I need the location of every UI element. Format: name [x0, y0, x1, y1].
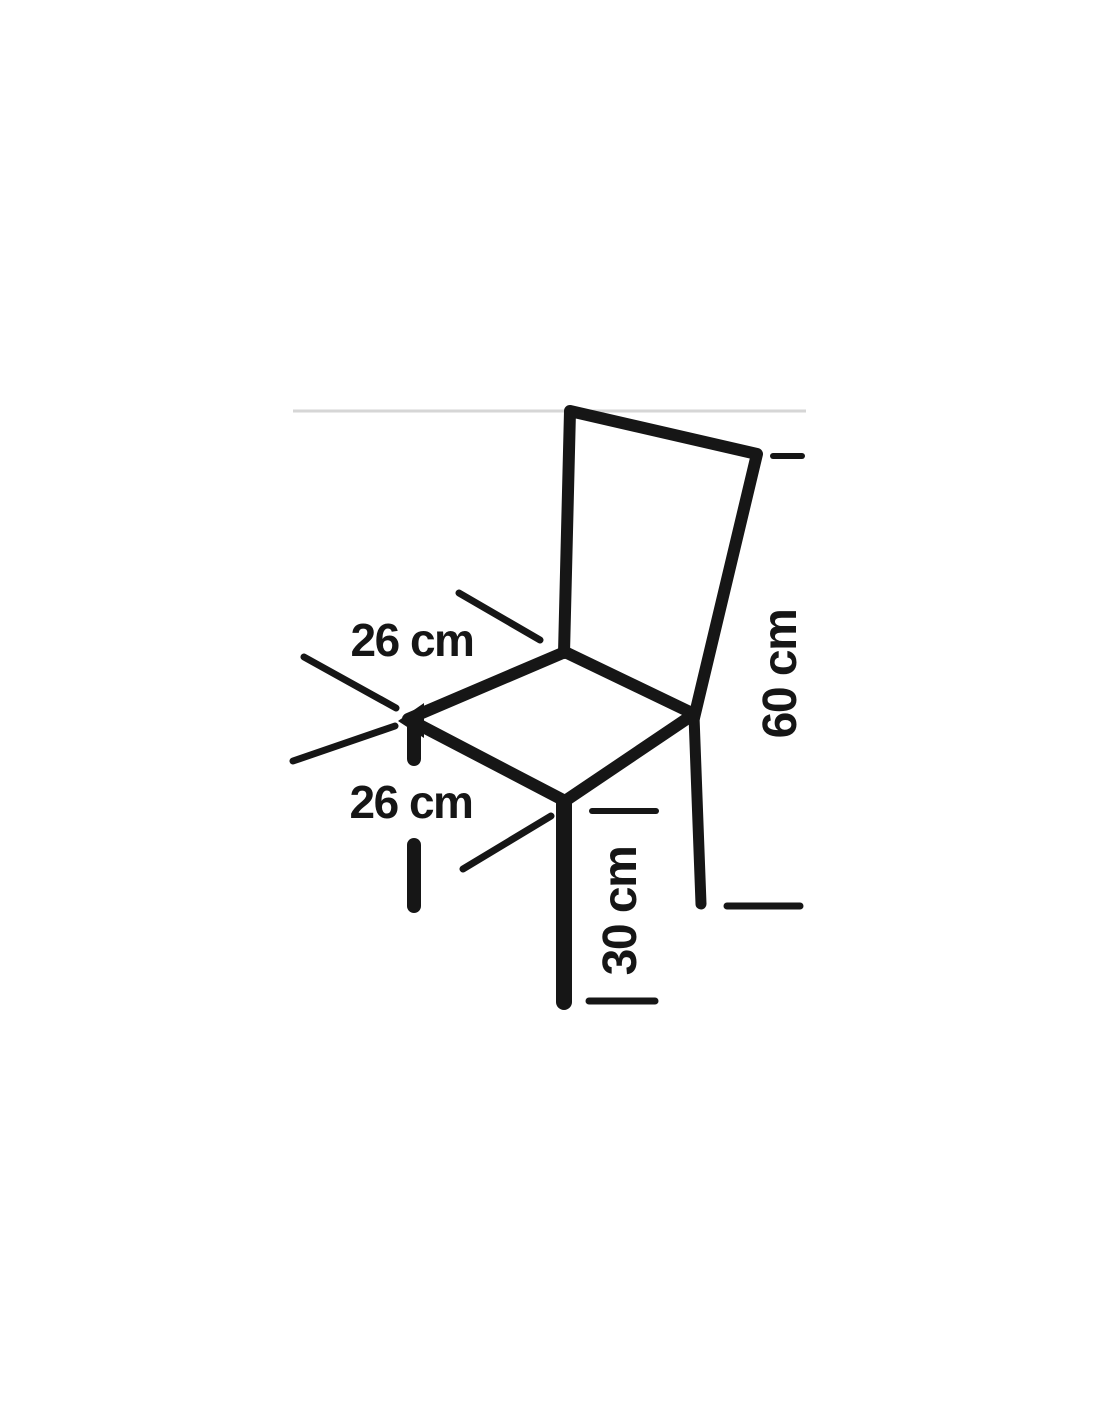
chair-dimension-diagram: 26 cm 26 cm 60 cm 30 cm [0, 0, 1100, 1422]
back-height-label: 60 cm [754, 610, 807, 739]
seat-depth-extension-line-lower [463, 816, 551, 869]
seat-depth-label: 26 cm [350, 776, 473, 828]
rear-right-leg [694, 716, 701, 904]
seat-depth-extension-line-upper [293, 726, 395, 761]
leg-height-label: 30 cm [594, 847, 647, 976]
seat-width-label: 26 cm [351, 614, 474, 666]
page-background: 26 cm 26 cm 60 cm 30 cm [0, 0, 1100, 1422]
